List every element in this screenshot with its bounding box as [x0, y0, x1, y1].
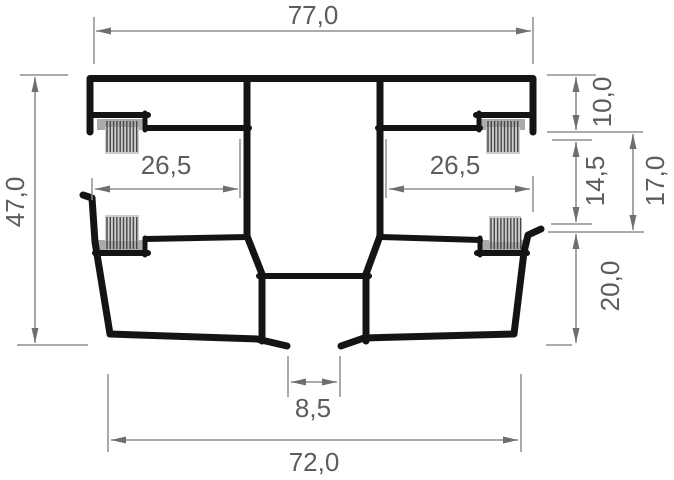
brush-seal-upper-left: [97, 119, 143, 154]
dim-label-left-track-width: 26,5: [141, 150, 192, 180]
dim-label-bottom-width: 72,0: [289, 447, 340, 477]
profile-drawing: 77,0 47,0 26,5 26,5 10,0 14,5 17,0: [0, 0, 674, 480]
profile-outline: [83, 79, 541, 347]
dim-label-track-total-height: 17,0: [640, 156, 670, 207]
brush-seal-lower-right: [481, 216, 527, 251]
dim-label-upper-wall-height: 10,0: [587, 77, 617, 128]
dim-label-overall-height: 47,0: [0, 177, 30, 228]
trunk-right-wall: [366, 79, 380, 341]
lower-left-ledge: [146, 237, 248, 239]
dimension-lower-chamber-height: 20,0: [546, 234, 625, 345]
top-flange: [90, 79, 533, 133]
brush-seal-upper-right: [479, 119, 525, 154]
dimension-bottom-width: 72,0: [108, 374, 521, 477]
dimension-bottom-slot-width: 8,5: [288, 356, 340, 423]
dim-label-top-width: 77,0: [288, 0, 339, 30]
brush-seal-lower-left: [97, 215, 143, 251]
dimension-track-opening-height: 14,5: [551, 140, 610, 224]
dim-label-track-opening-height: 14,5: [580, 156, 610, 207]
dim-label-bottom-slot-width: 8,5: [295, 393, 331, 423]
trunk-left-wall: [247, 79, 262, 341]
dimension-top-width: 77,0: [94, 0, 533, 64]
dimension-upper-wall-height: 10,0: [547, 75, 643, 132]
dim-label-right-track-width: 26,5: [430, 150, 481, 180]
dim-label-lower-chamber-height: 20,0: [595, 261, 625, 312]
technical-drawing-canvas: 77,0 47,0 26,5 26,5 10,0 14,5 17,0: [0, 0, 674, 480]
lower-right-ledge: [379, 237, 480, 240]
dimension-overall-height: 47,0: [0, 75, 88, 345]
